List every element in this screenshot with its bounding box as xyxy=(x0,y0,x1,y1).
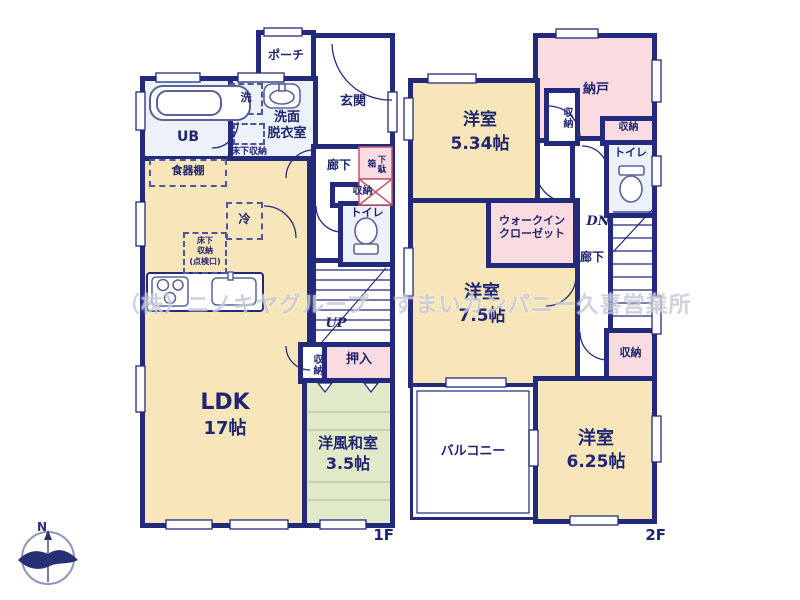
toilet-2f-label: トイレ xyxy=(606,146,655,159)
dn-label: DN xyxy=(582,214,614,230)
room534-name-label: 洋室 xyxy=(440,110,520,130)
room-tatami-1f xyxy=(302,378,395,528)
fridge-label: 冷 xyxy=(228,212,261,226)
ldk-size-label: 17帖 xyxy=(168,418,282,440)
room625-name-label: 洋室 xyxy=(556,428,636,450)
underfloor-ldk-line1: 床下 xyxy=(197,236,213,245)
toilet-1f-label: トイレ xyxy=(342,206,392,219)
underfloor-wash-label: 床下収納 xyxy=(218,147,280,158)
genkan-label: 玄関 xyxy=(315,94,391,110)
storage-nando-label: 収納 xyxy=(602,122,655,134)
ub-label: UB xyxy=(160,129,216,146)
balcony-label: バルコニー xyxy=(430,444,516,460)
washroom-label-line2: 脱衣室 xyxy=(267,126,306,141)
nando-label: 納戸 xyxy=(566,82,626,98)
tatami-size-label: 3.5帖 xyxy=(302,454,394,473)
room-625-2f xyxy=(533,376,657,524)
room-genkan-1f xyxy=(311,33,395,153)
ldk-name-label: LDK xyxy=(168,390,282,416)
storage-by-toilet-label: 収納 xyxy=(330,186,395,198)
washroom-label-line1: 洗面 xyxy=(274,110,300,125)
tatami-name-label: 洋風和室 xyxy=(302,434,394,452)
compass-icon xyxy=(18,530,78,584)
wic-label-line2: クローゼット xyxy=(499,227,565,240)
shoebox-label: 下駄箱 xyxy=(366,150,386,178)
watermark-text: （株）ニノキヤグループ すまいカンパニー久喜営業所 xyxy=(118,287,692,319)
storage-stairs-2f-label: 収納 xyxy=(606,346,655,359)
underfloor-ldk-line3: (点検口) xyxy=(189,257,220,266)
underfloor-ldk-label: 床下 収納 (点検口) xyxy=(183,236,227,267)
corridor-2f-label: 廊下 xyxy=(572,250,612,264)
wic-label-line1: ウォークイン xyxy=(499,214,565,227)
corridor-1f-label: 廊下 xyxy=(306,158,372,172)
laundry-label: 洗 xyxy=(231,91,261,104)
compass-north-label: N xyxy=(34,520,50,534)
underfloor-ldk-line2: 収納 xyxy=(197,246,213,255)
floorplan-canvas: ポーチ 玄関 洗 洗面 脱衣室 床下収納 UB 食器棚 廊下 下駄箱 収納 トイ… xyxy=(0,0,800,600)
cupboard-label: 食器棚 xyxy=(152,164,224,177)
oshiire-label: 押入 xyxy=(330,352,388,368)
washroom-label: 洗面 脱衣室 xyxy=(256,110,318,141)
floor2-label: 2F xyxy=(624,526,666,544)
room534-size-label: 5.34帖 xyxy=(434,134,526,154)
floor1-label: 1F xyxy=(352,526,394,544)
storage-534-label: 収納 xyxy=(552,98,572,138)
room625-size-label: 6.25帖 xyxy=(550,452,642,472)
wic-label: ウォークイン クローゼット xyxy=(490,214,574,240)
porch-label: ポーチ xyxy=(256,48,316,62)
storage-by-stairs-label: 収納 xyxy=(304,348,322,382)
